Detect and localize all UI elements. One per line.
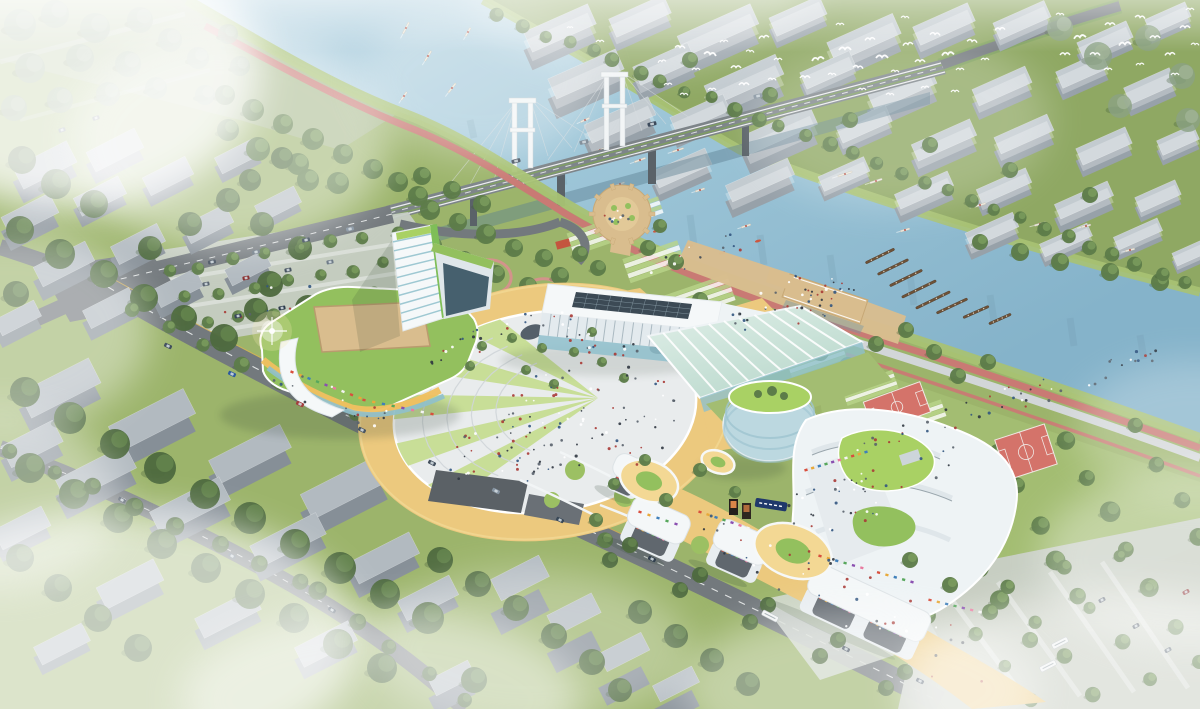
- person-dot: [830, 304, 833, 307]
- person-dot: [874, 443, 877, 446]
- person-dot: [1021, 399, 1023, 401]
- roof-tree: [754, 390, 762, 398]
- person-dot: [872, 486, 874, 488]
- person-dot: [510, 432, 512, 434]
- person-dot: [440, 359, 442, 361]
- person-dot: [807, 290, 809, 292]
- person-dot: [1004, 388, 1006, 390]
- person-dot: [817, 294, 819, 296]
- person-dot: [356, 413, 359, 416]
- person-dot: [942, 450, 944, 452]
- tree-highlight: [286, 275, 293, 282]
- person-dot: [384, 412, 386, 414]
- tree-highlight: [329, 235, 337, 243]
- person-dot: [442, 350, 444, 352]
- tree-highlight: [904, 323, 913, 332]
- person-dot: [500, 333, 502, 335]
- person-dot: [716, 529, 718, 531]
- person-dot: [851, 479, 853, 481]
- tree-highlight: [573, 348, 579, 354]
- tree-highlight: [480, 196, 490, 206]
- person-dot: [954, 427, 957, 430]
- person-dot: [553, 316, 555, 318]
- tree-highlight: [420, 168, 430, 178]
- person-dot: [665, 256, 668, 259]
- person-dot: [829, 528, 832, 531]
- person-dot: [559, 422, 562, 425]
- tree-highlight: [111, 431, 128, 448]
- tree-highlight: [263, 248, 270, 255]
- person-dot: [855, 598, 858, 601]
- person-dot: [476, 329, 478, 331]
- person-dot: [797, 322, 799, 324]
- person-dot: [551, 466, 553, 468]
- tree-highlight: [168, 322, 175, 329]
- person-dot: [1094, 383, 1097, 386]
- tree-highlight: [542, 250, 552, 260]
- person-dot: [935, 476, 938, 479]
- person-dot: [796, 493, 798, 495]
- person-dot: [650, 271, 653, 274]
- person-dot: [920, 457, 923, 460]
- person-dot: [855, 512, 857, 514]
- person-dot: [550, 443, 553, 446]
- person-dot: [640, 447, 642, 449]
- person-dot: [308, 285, 311, 288]
- person-dot: [795, 306, 797, 308]
- person-dot: [539, 461, 541, 463]
- person-dot: [533, 400, 535, 402]
- fog-patch: [750, 30, 1050, 210]
- tree-highlight: [658, 220, 666, 228]
- person-dot: [875, 513, 878, 516]
- person-dot: [614, 353, 617, 356]
- tree-highlight: [361, 233, 368, 240]
- person-dot: [824, 285, 826, 287]
- person-dot: [810, 294, 812, 296]
- person-dot: [224, 311, 226, 313]
- person-dot: [885, 484, 888, 487]
- person-dot: [662, 395, 664, 397]
- person-dot: [801, 294, 804, 297]
- person-dot: [833, 291, 836, 294]
- person-dot: [578, 464, 580, 466]
- person-dot: [582, 418, 585, 421]
- person-dot: [684, 268, 686, 270]
- person-dot: [765, 306, 767, 308]
- reflection-streak: [1140, 335, 1144, 359]
- person-dot: [612, 407, 614, 409]
- person-dot: [746, 319, 748, 321]
- person-dot: [902, 424, 905, 427]
- person-dot: [842, 511, 844, 513]
- tree-highlight: [512, 240, 522, 250]
- person-dot: [373, 424, 376, 427]
- tree-highlight: [658, 75, 666, 83]
- person-dot: [597, 388, 599, 390]
- person-dot: [871, 437, 874, 440]
- tree-highlight: [469, 362, 475, 368]
- tree-highlight: [484, 226, 495, 237]
- tree-highlight: [601, 358, 607, 364]
- person-dot: [1012, 396, 1015, 399]
- tree-highlight: [428, 202, 439, 213]
- person-dot: [464, 456, 466, 458]
- tree-highlight: [678, 583, 687, 592]
- person-dot: [818, 595, 820, 597]
- aerial-architectural-rendering: [0, 0, 1200, 709]
- person-dot: [542, 324, 544, 326]
- person-dot: [588, 346, 591, 349]
- person-dot: [869, 576, 872, 579]
- tree-highlight: [450, 182, 460, 192]
- person-dot: [1137, 359, 1140, 362]
- person-dot: [722, 247, 725, 250]
- person-dot: [558, 426, 561, 429]
- person-dot: [1104, 376, 1107, 379]
- person-dot: [581, 410, 583, 412]
- person-dot: [965, 402, 967, 404]
- person-dot: [733, 245, 735, 247]
- tree-highlight: [1088, 188, 1097, 197]
- person-dot: [529, 432, 531, 434]
- person-dot: [525, 400, 527, 402]
- person-dot: [524, 313, 527, 316]
- person-dot: [474, 432, 477, 435]
- tree-highlight: [169, 265, 176, 272]
- tree-highlight: [1018, 244, 1028, 254]
- person-dot: [570, 318, 572, 320]
- tree-highlight: [231, 253, 238, 260]
- tree-highlight: [1085, 471, 1094, 480]
- person-dot: [519, 457, 521, 459]
- tree-highlight: [948, 578, 957, 587]
- tree-highlight: [494, 266, 504, 276]
- person-dot: [811, 291, 813, 293]
- person-dot: [273, 379, 276, 382]
- person-dot: [723, 523, 725, 525]
- person-dot: [525, 436, 527, 438]
- person-dot: [516, 464, 518, 466]
- person-dot: [846, 578, 849, 581]
- person-dot: [533, 449, 535, 451]
- person-dot: [548, 468, 550, 470]
- person-dot: [636, 463, 639, 466]
- person-dot: [800, 306, 803, 309]
- person-dot: [467, 472, 470, 475]
- tree-highlight: [156, 454, 174, 472]
- person-dot: [516, 468, 519, 471]
- tree-highlight: [1161, 269, 1168, 276]
- person-dot: [833, 479, 836, 482]
- tree-highlight: [596, 261, 605, 270]
- person-dot: [786, 305, 788, 307]
- person-dot: [710, 514, 713, 517]
- tree-highlight: [206, 317, 213, 324]
- tree-highlight: [511, 334, 517, 340]
- person-dot: [331, 386, 333, 388]
- person-dot: [808, 568, 810, 570]
- person-dot: [810, 513, 812, 515]
- tree-highlight: [240, 358, 249, 367]
- person-dot: [989, 395, 991, 397]
- tree-highlight: [217, 289, 224, 296]
- person-dot: [558, 412, 560, 414]
- person-dot: [723, 552, 725, 554]
- person-dot: [634, 377, 636, 379]
- person-dot: [627, 218, 630, 221]
- person-dot: [449, 469, 452, 472]
- person-dot: [1151, 360, 1154, 363]
- tree-highlight: [1019, 212, 1026, 219]
- person-dot: [249, 313, 252, 316]
- person-dot: [644, 416, 646, 418]
- person-dot: [898, 440, 900, 442]
- person-dot: [944, 427, 946, 429]
- person-dot: [853, 488, 855, 490]
- person-dot: [900, 486, 902, 488]
- person-dot: [383, 417, 385, 419]
- person-dot: [888, 441, 890, 443]
- person-dot: [378, 418, 380, 420]
- person-dot: [804, 288, 806, 290]
- person-dot: [801, 497, 804, 500]
- person-dot: [473, 470, 475, 472]
- person-dot: [512, 440, 515, 443]
- person-dot: [856, 482, 858, 484]
- person-dot: [617, 210, 619, 212]
- person-dot: [838, 491, 840, 493]
- roof-tree: [780, 392, 788, 400]
- person-dot: [663, 381, 665, 383]
- person-dot: [636, 350, 639, 353]
- tree-highlight: [956, 369, 965, 378]
- person-dot: [561, 311, 564, 314]
- person-dot: [864, 443, 866, 445]
- fog-patch: [70, 30, 390, 250]
- person-dot: [756, 571, 759, 574]
- person-dot: [472, 335, 475, 338]
- tree-highlight: [698, 568, 707, 577]
- tree-highlight: [1087, 242, 1095, 250]
- tree-highlight: [253, 300, 266, 313]
- person-dot: [617, 221, 619, 223]
- person-dot: [506, 327, 509, 330]
- reflection-streak: [690, 215, 694, 245]
- tree-highlight: [733, 103, 742, 112]
- person-dot: [568, 327, 570, 329]
- tree-highlight: [437, 549, 451, 563]
- person-dot: [594, 344, 596, 346]
- person-dot: [567, 418, 569, 420]
- person-dot: [734, 322, 736, 324]
- person-dot: [431, 362, 433, 364]
- person-dot: [970, 414, 972, 416]
- person-dot: [812, 514, 814, 516]
- person-dot: [769, 544, 772, 547]
- person-dot: [787, 504, 790, 507]
- bridge-pier: [648, 150, 656, 184]
- person-dot: [1039, 384, 1041, 386]
- person-dot: [819, 304, 822, 307]
- tree-highlight: [221, 326, 236, 341]
- tree-highlight: [1006, 581, 1014, 589]
- person-dot: [538, 466, 540, 468]
- person-dot: [874, 438, 877, 441]
- person-dot: [615, 445, 617, 447]
- person-dot: [472, 331, 474, 333]
- person-dot: [807, 300, 810, 303]
- person-dot: [831, 298, 833, 300]
- person-dot: [1154, 349, 1157, 352]
- person-dot: [788, 281, 790, 283]
- person-dot: [848, 288, 850, 290]
- person-dot: [1144, 354, 1147, 357]
- person-dot: [824, 315, 826, 317]
- person-dot: [1059, 389, 1062, 392]
- person-dot: [827, 559, 830, 562]
- person-dot: [535, 375, 538, 378]
- person-dot: [580, 362, 583, 365]
- person-dot: [613, 217, 615, 219]
- person-dot: [952, 446, 954, 448]
- person-dot: [471, 450, 473, 452]
- person-dot: [581, 339, 583, 341]
- billboard-image: [744, 505, 750, 512]
- person-dot: [354, 415, 356, 417]
- person-dot: [774, 291, 776, 293]
- tree-highlight: [1067, 230, 1075, 238]
- person-dot: [626, 374, 629, 377]
- tree-highlight: [456, 214, 466, 224]
- tree-highlight: [874, 337, 883, 346]
- person-dot: [1001, 406, 1003, 408]
- person-dot: [866, 510, 869, 513]
- person-dot: [579, 334, 581, 336]
- tree-highlight: [246, 504, 264, 522]
- person-dot: [608, 447, 611, 450]
- person-dot: [1030, 388, 1032, 390]
- pier-planter: [629, 215, 635, 221]
- person-dot: [829, 562, 832, 565]
- person-dot: [552, 394, 555, 397]
- person-dot: [841, 282, 843, 284]
- person-dot: [527, 452, 530, 455]
- person-dot: [608, 218, 611, 221]
- person-dot: [615, 439, 618, 442]
- tree-highlight: [766, 598, 775, 607]
- person-dot: [1088, 384, 1090, 386]
- person-dot: [345, 407, 347, 409]
- tree-highlight: [396, 174, 407, 185]
- pier-planter: [625, 203, 631, 209]
- person-dot: [503, 419, 505, 421]
- person-dot: [530, 315, 532, 317]
- person-dot: [1043, 379, 1045, 381]
- person-dot: [909, 600, 912, 603]
- person-dot: [699, 256, 701, 258]
- person-dot: [385, 410, 387, 412]
- person-dot: [627, 366, 630, 369]
- person-dot: [575, 454, 578, 457]
- person-dot: [778, 588, 781, 591]
- person-dot: [688, 246, 690, 248]
- person-dot: [860, 480, 862, 482]
- person-dot: [512, 394, 515, 397]
- person-dot: [529, 416, 531, 418]
- tree-highlight: [594, 514, 602, 522]
- person-dot: [622, 354, 624, 356]
- person-dot: [463, 436, 466, 439]
- person-dot: [1025, 405, 1027, 407]
- person-dot: [587, 333, 590, 336]
- tree-highlight: [541, 344, 547, 350]
- reflection-streak: [910, 275, 914, 305]
- person-dot: [831, 278, 833, 280]
- tree-highlight: [1179, 65, 1193, 79]
- person-dot: [808, 550, 811, 553]
- person-dot: [289, 307, 291, 309]
- person-dot: [872, 469, 875, 472]
- person-dot: [810, 309, 812, 311]
- tree-highlight: [1108, 264, 1118, 274]
- tree-highlight: [558, 268, 568, 278]
- tree-highlight: [336, 554, 354, 572]
- tree-highlight: [646, 241, 655, 250]
- tree-highlight: [698, 464, 706, 472]
- person-dot: [901, 433, 903, 435]
- person-dot: [1047, 399, 1050, 402]
- person-dot: [468, 437, 470, 439]
- person-dot: [813, 488, 815, 490]
- roof-tree: [767, 386, 777, 396]
- person-dot: [528, 425, 531, 428]
- tree-highlight: [992, 205, 999, 212]
- person-dot: [799, 277, 802, 280]
- tree-highlight: [381, 581, 398, 598]
- person-dot: [856, 449, 858, 451]
- person-dot: [839, 288, 841, 290]
- person-dot: [583, 407, 585, 409]
- person-dot: [793, 522, 795, 524]
- person-dot: [266, 285, 268, 287]
- scene-canvas: [0, 0, 1200, 709]
- person-dot: [843, 585, 846, 588]
- tree-highlight: [591, 328, 597, 334]
- tree-highlight: [299, 244, 305, 250]
- person-dot: [725, 235, 727, 237]
- tree-highlight: [201, 339, 208, 346]
- person-dot: [746, 557, 748, 559]
- person-dot: [861, 473, 863, 475]
- billboard-image: [731, 501, 737, 508]
- person-dot: [875, 502, 877, 504]
- green-mound: [691, 536, 709, 554]
- person-dot: [1121, 364, 1123, 366]
- person-dot: [679, 255, 681, 257]
- tree-highlight: [1183, 277, 1190, 284]
- person-dot: [591, 437, 593, 439]
- person-dot: [508, 414, 510, 416]
- person-dot: [545, 374, 547, 376]
- person-dot: [561, 377, 564, 380]
- person-dot: [732, 313, 735, 316]
- tree-highlight: [1038, 518, 1048, 528]
- tree-highlight: [1117, 96, 1130, 109]
- tree-highlight: [553, 380, 559, 386]
- person-dot: [864, 519, 867, 522]
- person-dot: [629, 452, 631, 454]
